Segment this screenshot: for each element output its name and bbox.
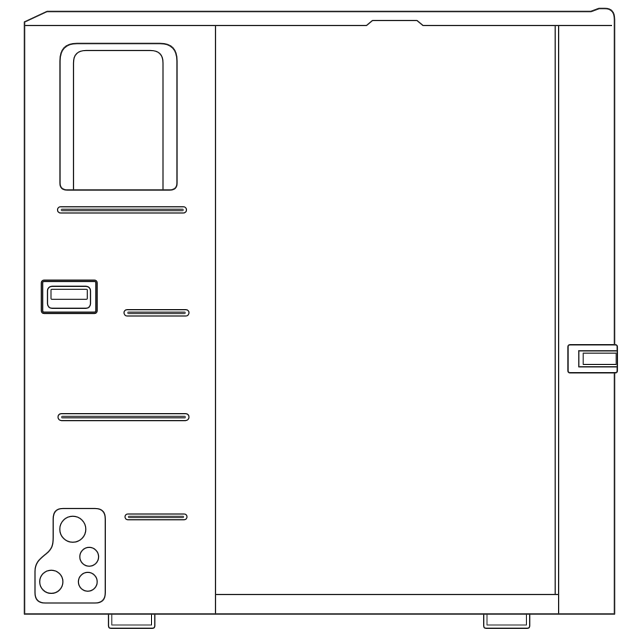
connector-hole-1: [60, 516, 86, 542]
vent-slot-4: [125, 514, 187, 520]
side-latch: [568, 345, 617, 373]
connector-hole-4: [78, 572, 97, 591]
connector-hole-2: [80, 547, 99, 566]
foot-right: [484, 614, 530, 628]
vent-slot-2: [124, 310, 189, 316]
vent-slot-3: [58, 414, 189, 421]
rectangular-port: [42, 281, 97, 313]
drawing-layer: [25, 9, 618, 629]
instrument-front-drawing: [0, 0, 640, 640]
connector-hole-3: [40, 570, 63, 593]
foot-left: [109, 614, 155, 628]
rounded-window-outer-frame: [60, 44, 177, 191]
drawing-svg: [0, 0, 640, 640]
port-tongue: [51, 289, 87, 299]
vent-slot-1: [58, 207, 187, 213]
side-latch-inner: [583, 353, 616, 364]
